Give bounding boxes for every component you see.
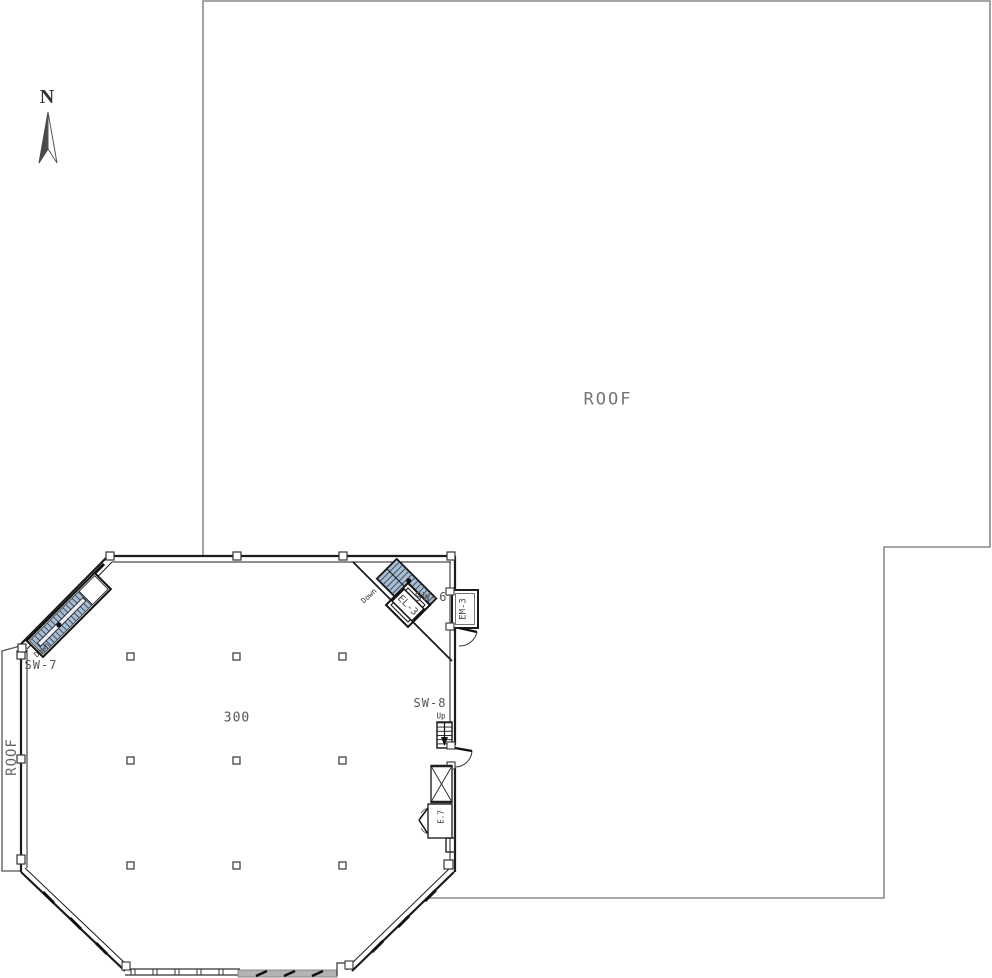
shaft-x-brace bbox=[431, 766, 452, 802]
roof-strip-label: ROOF bbox=[5, 738, 19, 776]
sw8-label: SW-8 bbox=[414, 697, 447, 709]
plan-linework bbox=[0, 0, 992, 978]
em3-label: EM-3 bbox=[460, 598, 469, 620]
up-label: Up bbox=[436, 712, 445, 720]
roof-outline bbox=[203, 1, 990, 898]
e7-label: E.7 bbox=[437, 810, 445, 824]
sw6-label: SW-6 bbox=[415, 591, 448, 603]
floor-plan-canvas: N ROOF ROOF 300 SW-6 SW-7 SW-8 Up Down D… bbox=[0, 0, 992, 978]
sw7-label: SW-7 bbox=[25, 659, 58, 671]
room-number-label: 300 bbox=[224, 712, 250, 725]
column-grid bbox=[127, 653, 346, 869]
north-arrow-icon bbox=[39, 112, 57, 163]
north-label: N bbox=[40, 87, 54, 107]
bottom-wall bbox=[122, 961, 353, 977]
roof-label: ROOF bbox=[584, 392, 633, 409]
